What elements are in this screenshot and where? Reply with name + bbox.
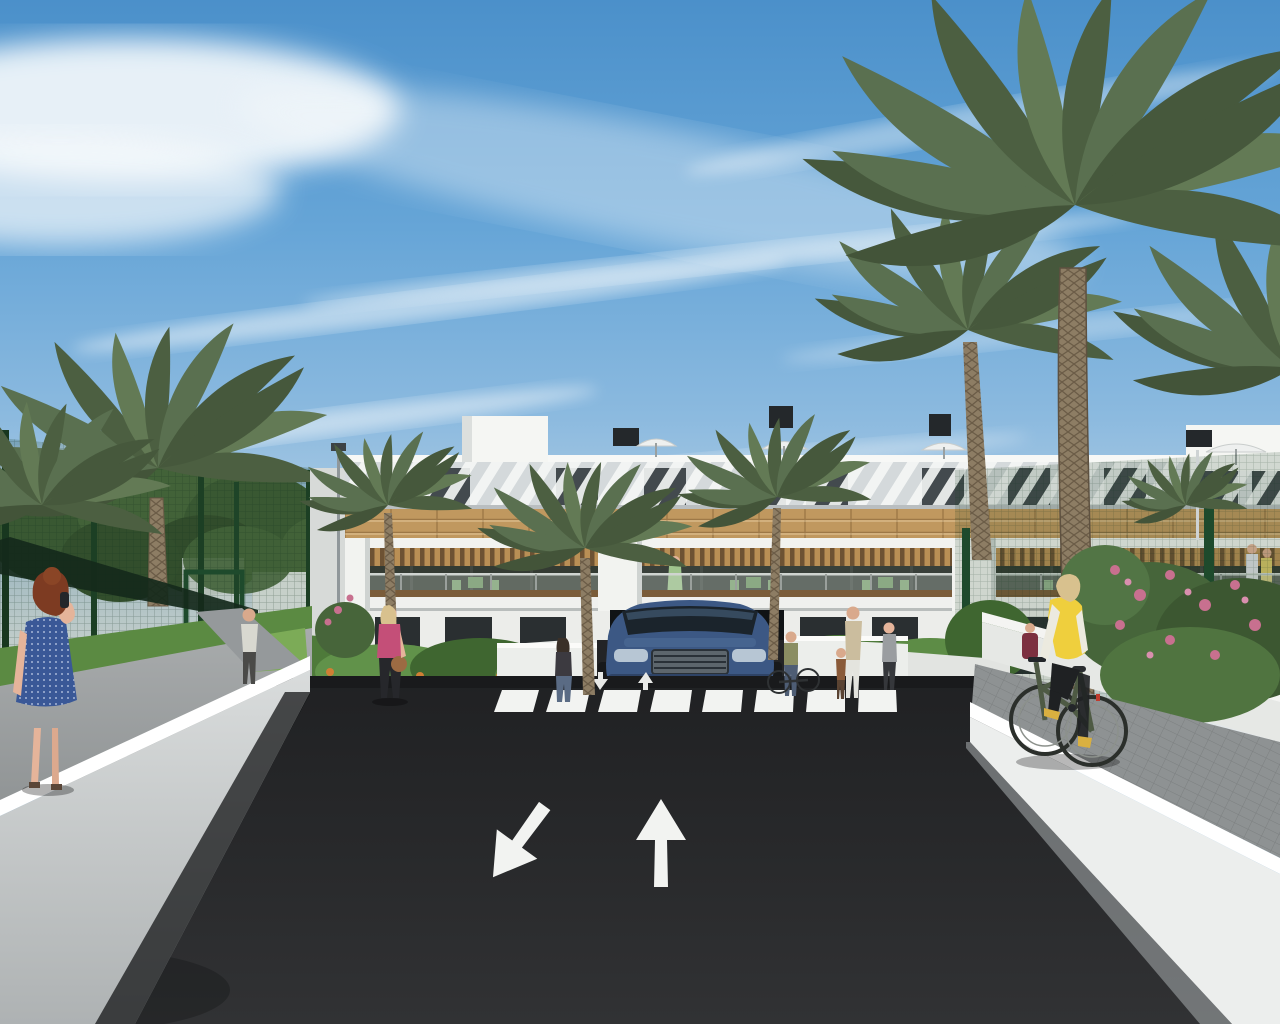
render-scene (0, 0, 1280, 1024)
architectural-render (0, 0, 1280, 1024)
